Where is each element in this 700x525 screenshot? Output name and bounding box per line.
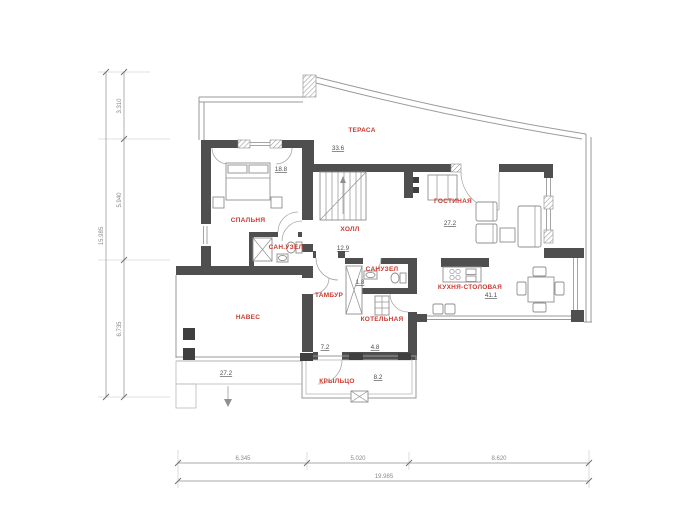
- tv-console: [428, 175, 457, 200]
- carport-structure: [176, 275, 302, 408]
- living-label: ГОСТИНАЯ: [434, 198, 472, 205]
- carport-label: НАВЕС: [236, 314, 260, 321]
- hall-label: ХОЛЛ: [340, 226, 359, 233]
- tambour-label: ТАМБУР: [315, 292, 343, 299]
- tambour-area: 7.2: [321, 344, 330, 351]
- bed: [213, 163, 282, 208]
- kitchen-island: [441, 258, 489, 282]
- floor-plan-canvas: 3.310 5.940 6.735 15.985 6.345 5.020 8.6…: [0, 0, 700, 525]
- dining-set: [517, 267, 564, 312]
- boiler-area: 4.8: [371, 344, 380, 351]
- porch-structure: [300, 353, 416, 402]
- dim-bottom-seg-3: 8.620: [491, 456, 507, 462]
- wc-area: 1.8: [356, 279, 365, 286]
- dim-bottom-seg-1: 6.345: [235, 456, 251, 462]
- bedroom-label: СПАЛЬНЯ: [231, 217, 266, 224]
- terrace-label: ТЕРАСА: [348, 127, 375, 134]
- dim-left-seg-3: 6.735: [117, 321, 123, 337]
- breakfast-chairs: [433, 304, 455, 314]
- boiler-label: КОТЕЛЬНАЯ: [361, 316, 404, 323]
- tambour-closet: [346, 266, 362, 314]
- dim-left-seg-1: 3.310: [117, 98, 123, 114]
- kitchen-label: КУХНЯ-СТОЛОВАЯ: [438, 284, 502, 291]
- dim-bottom-total: 19.985: [375, 474, 394, 480]
- dim-left-seg-2: 5.940: [117, 192, 123, 208]
- sofa-group: [476, 202, 541, 247]
- terrace-area: 33.6: [332, 145, 345, 152]
- dim-left-total: 15.985: [99, 226, 105, 245]
- living-area: 27.2: [444, 220, 457, 227]
- dim-bottom-seg-2: 5.020: [350, 456, 366, 462]
- hall-area: 12.9: [337, 245, 350, 252]
- bathroom-label: САН.УЗЕЛ: [269, 244, 304, 251]
- bedroom-area: 18.8: [275, 166, 288, 173]
- staircase: [320, 172, 366, 220]
- wc-label: САНУЗЕЛ: [366, 266, 399, 273]
- floor-plan-drawing: 3.310 5.940 6.735 15.985 6.345 5.020 8.6…: [0, 0, 700, 525]
- kitchen-area: 41.1: [485, 292, 498, 299]
- porch-label: КРЫЛЬЦО: [319, 378, 354, 385]
- boiler-unit: [375, 296, 389, 315]
- porch-area: 8.2: [374, 374, 383, 381]
- carport-area: 27.2: [220, 370, 233, 377]
- dimension-annotations: 3.310 5.940 6.735 15.985 6.345 5.020 8.6…: [98, 69, 592, 488]
